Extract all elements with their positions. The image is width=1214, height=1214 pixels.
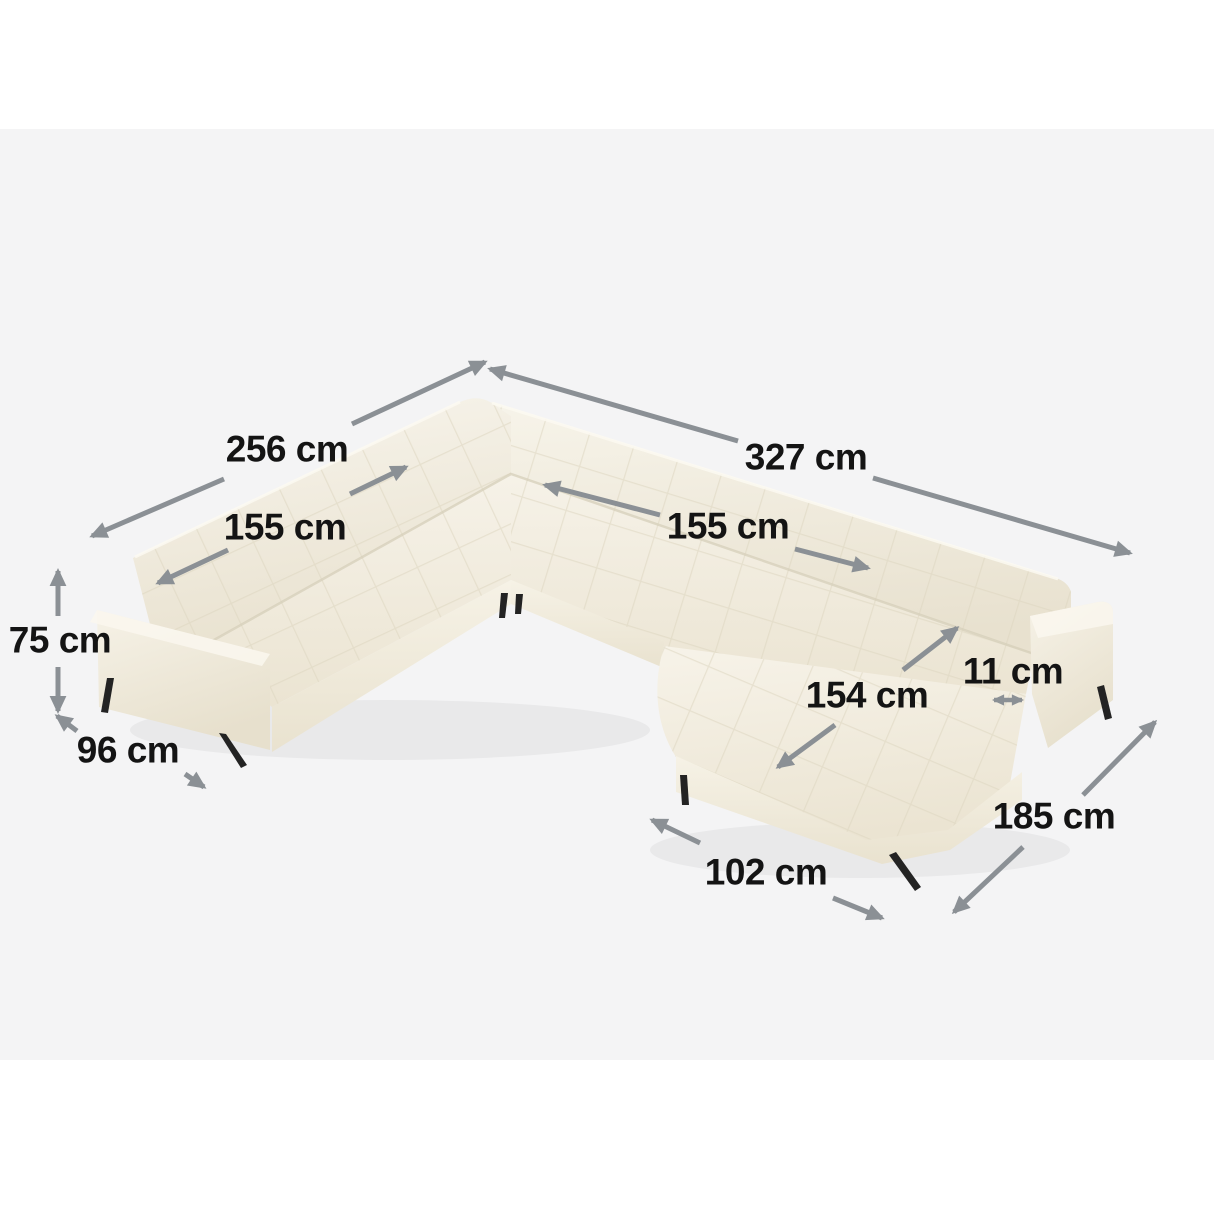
- dim-label-right-side-depth: 185 cm: [993, 798, 1116, 835]
- sofa: [90, 398, 1113, 891]
- sofa-dimension-illustration: [0, 0, 1214, 1214]
- dim-label-back-right-width: 327 cm: [745, 439, 868, 476]
- leg: [515, 594, 523, 614]
- dim-label-chaise-width: 102 cm: [705, 854, 828, 891]
- dim-label-right-seat-width: 155 cm: [667, 508, 790, 545]
- dim-label-back-left-width: 256 cm: [226, 431, 349, 468]
- product-dimension-image: 256 cm 327 cm 155 cm 155 cm 75 cm 96 cm …: [0, 0, 1214, 1214]
- dim-label-depth: 96 cm: [77, 732, 179, 769]
- dim-label-chaise-length: 154 cm: [806, 677, 929, 714]
- dim-label-arm-gap: 11 cm: [963, 653, 1063, 690]
- dim-label-left-seat-width: 155 cm: [224, 509, 347, 546]
- dim-label-seat-height: 75 cm: [9, 622, 111, 659]
